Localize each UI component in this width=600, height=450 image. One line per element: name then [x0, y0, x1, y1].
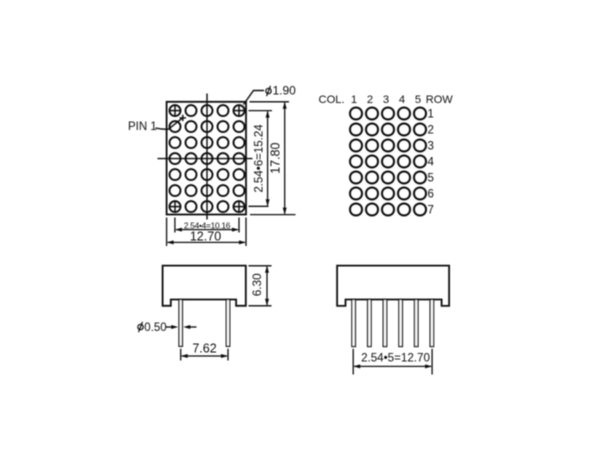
svg-text:7.62: 7.62 — [192, 341, 216, 355]
svg-text:2.54•5=12.70: 2.54•5=12.70 — [361, 351, 430, 364]
svg-text:COL.: COL. — [319, 94, 345, 106]
svg-text:5: 5 — [415, 94, 421, 106]
svg-text:PIN 1: PIN 1 — [128, 121, 157, 133]
svg-text:ROW: ROW — [426, 94, 454, 106]
svg-text:4: 4 — [428, 157, 435, 169]
svg-text:2: 2 — [428, 125, 434, 137]
svg-text:1: 1 — [351, 94, 357, 106]
svg-text:2: 2 — [367, 94, 373, 106]
svg-text:3: 3 — [428, 141, 434, 153]
svg-text:4: 4 — [399, 94, 405, 106]
svg-text:17.80: 17.80 — [268, 143, 282, 174]
svg-text:1: 1 — [428, 109, 434, 121]
svg-text:7: 7 — [428, 205, 434, 217]
svg-text:12.70: 12.70 — [190, 229, 221, 243]
svg-text:3: 3 — [383, 94, 389, 106]
svg-text:1.90: 1.90 — [273, 84, 297, 98]
svg-text:6.30: 6.30 — [250, 273, 264, 296]
svg-text:6: 6 — [428, 189, 434, 201]
svg-text:5: 5 — [428, 173, 434, 185]
svg-text:2.54•6=15.24: 2.54•6=15.24 — [253, 124, 265, 193]
svg-text:0.50: 0.50 — [144, 322, 166, 334]
